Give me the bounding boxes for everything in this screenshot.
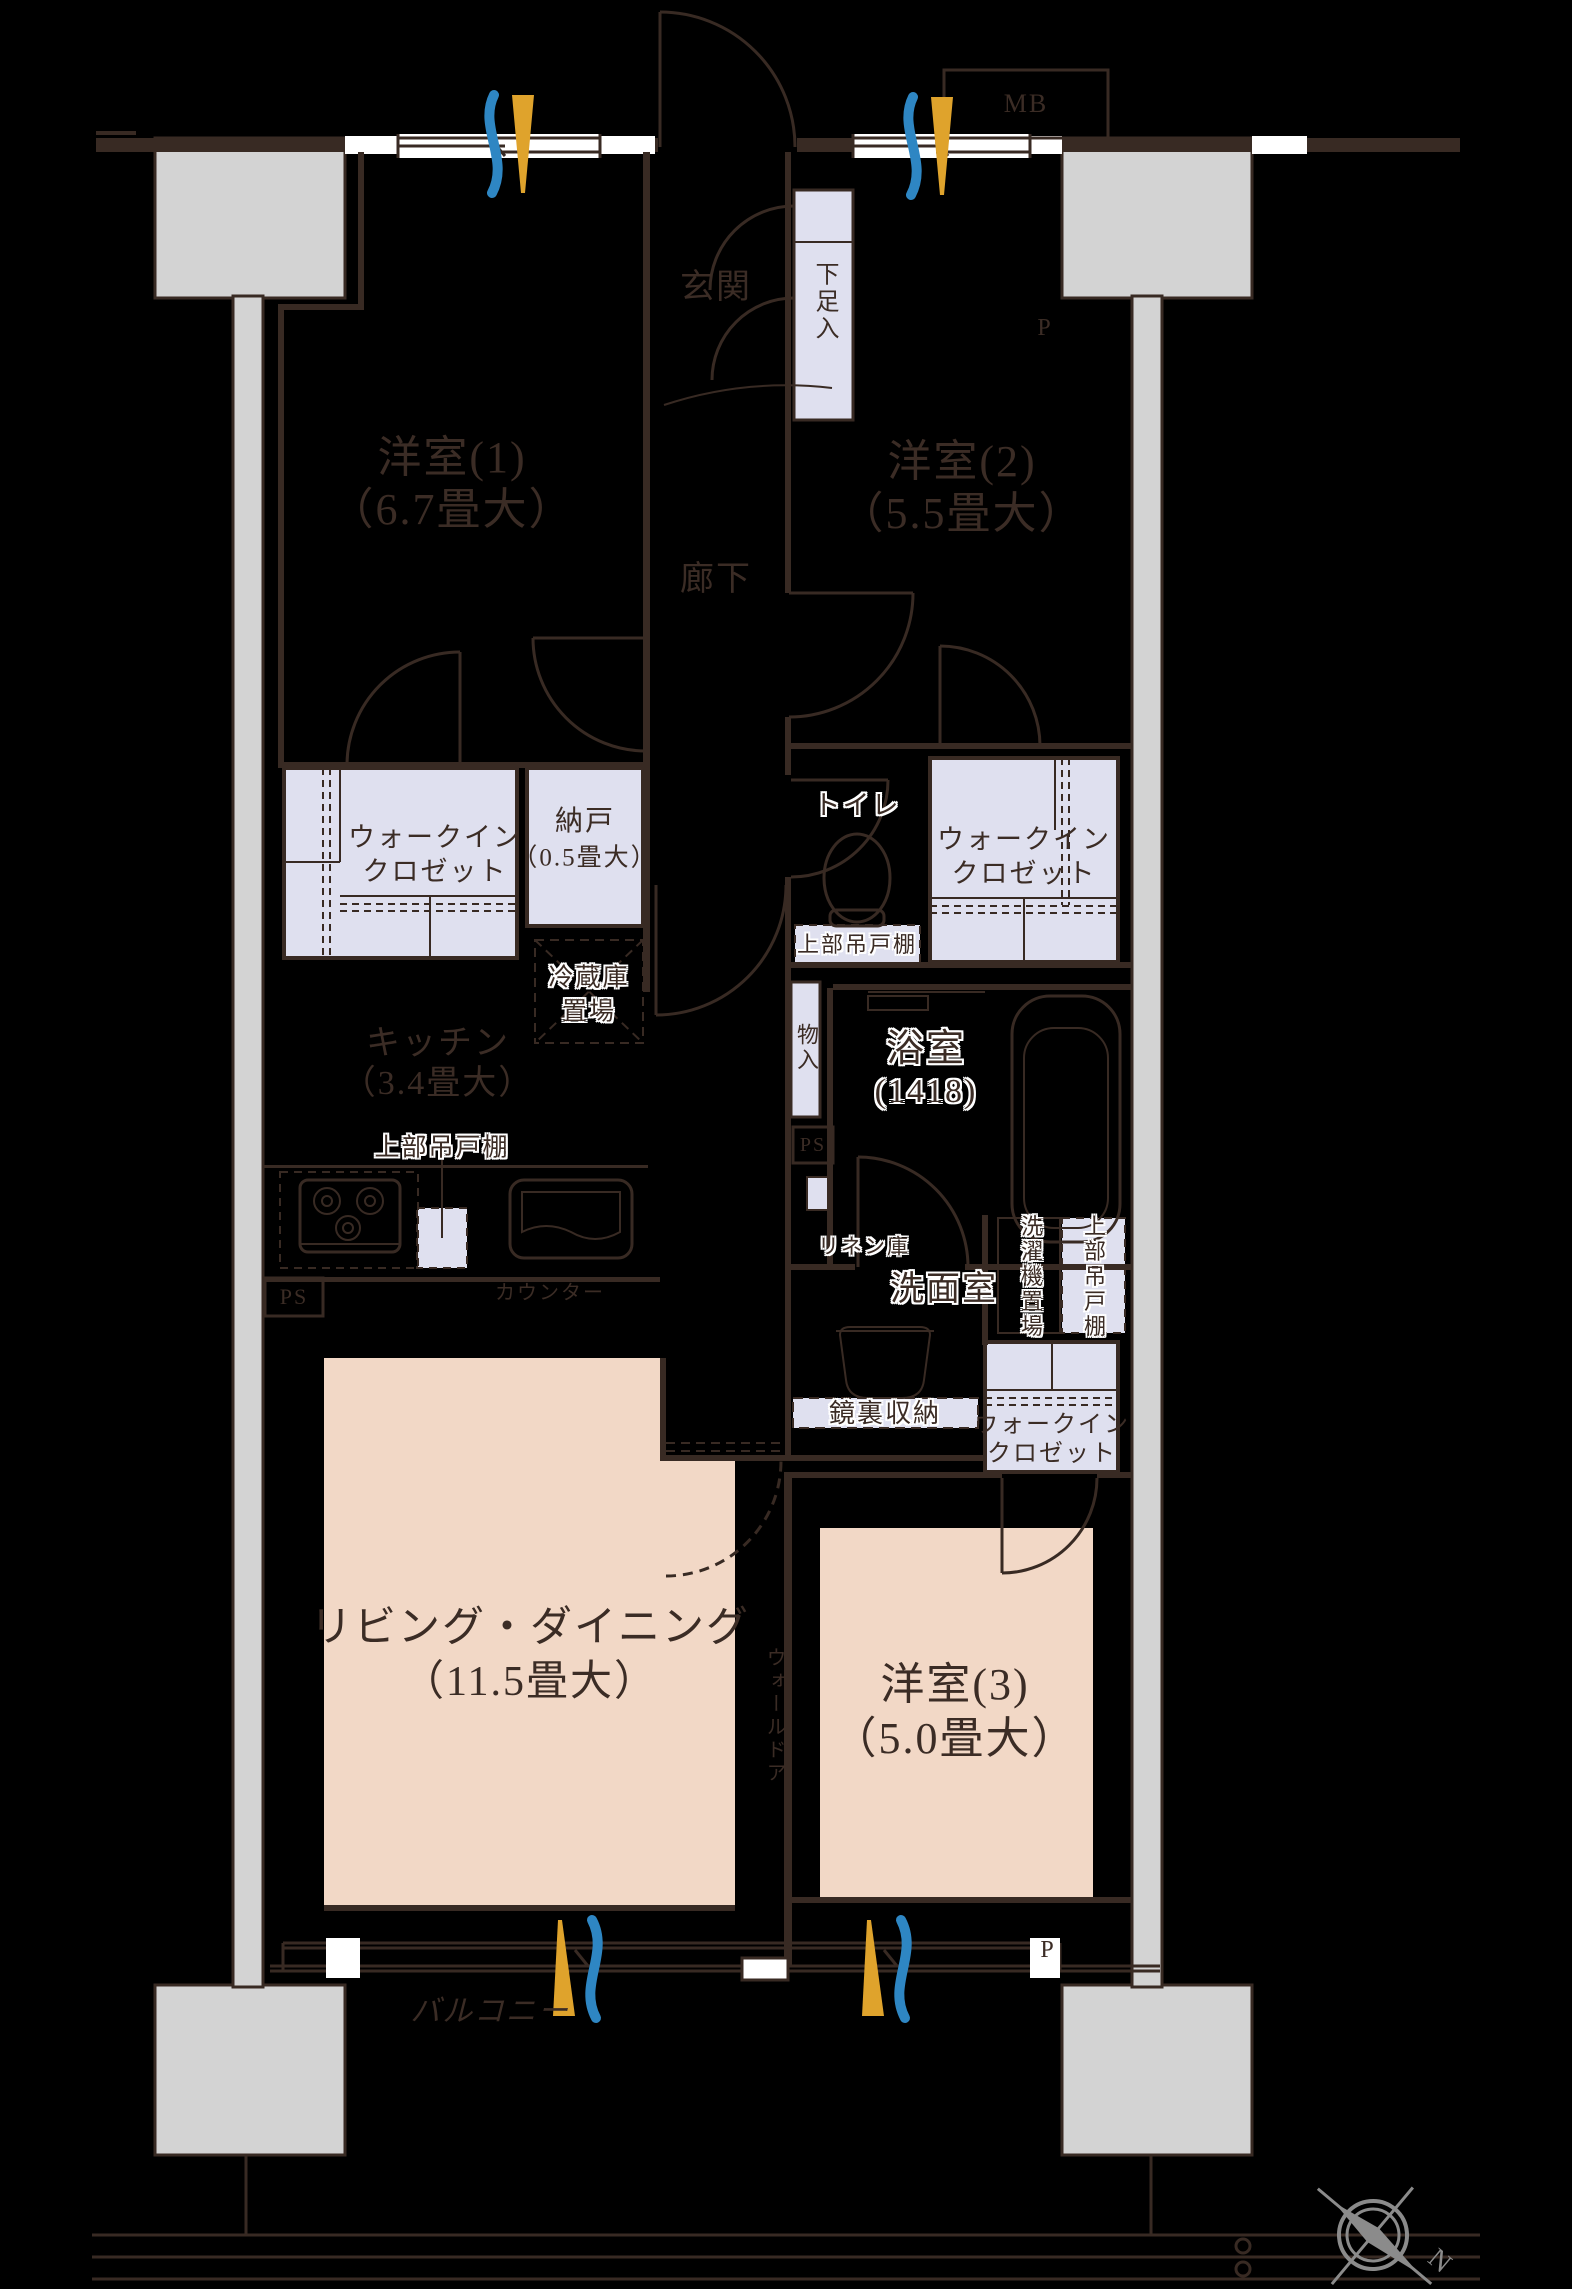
toilet-label: トイレ [814,793,901,820]
hallway-label: 廊下 [680,563,752,597]
living-dining-label: リビング・ダイニング [310,1607,750,1649]
floorplan: 洋室(1) （6.7畳大） 洋室(2) （5.5畳大） 洋室(3) （5.0畳大… [0,0,1572,2289]
bathroom-size: (1418) [875,1075,978,1109]
wic2-label-line2: クロゼット [952,861,1097,888]
bedroom2-size: （5.5畳大） [840,492,1085,536]
pillar-top-left [155,138,345,298]
linen-label: リネン庫 [818,1237,910,1258]
bedroom2-label: 洋室(2) [887,440,1036,484]
mirror-storage-label: 鏡裏収納 [829,1401,941,1427]
kitchen-label: キッチン [366,1027,510,1061]
floorplan-drawing [0,0,1572,2289]
ps-right-label: PS [800,1135,826,1155]
kitchen-upper-cabinet-label: 上部吊戸棚 [374,1136,509,1161]
meter-box-label: MB [1004,91,1048,117]
washroom-label: 洗面室 [890,1273,998,1307]
kitchen-size: （3.4畳大） [342,1067,535,1101]
pillar-bottom-left [155,1985,345,2155]
bottom-windows [270,1938,1160,1980]
pillar-bottom-right [1062,1985,1252,2155]
right-outer-wall [1132,296,1162,1987]
washer-space-label: 洗濯機置場 [1019,1215,1041,1340]
ps-left-label: PS [280,1286,308,1308]
pipe-label-bottom: P [1040,1938,1055,1962]
laundry-upper-cabinet-label: 上部吊戸棚 [1082,1215,1104,1340]
wall-door-label: ウォールドア [764,1647,784,1785]
left-outer-wall [233,296,263,1987]
nando-label: 納戸 [555,808,615,836]
entrance-label: 玄関 [680,271,752,305]
bedroom3-floor [820,1528,1093,1897]
nando-size: （0.5畳大） [512,846,657,871]
refrigerator-label-line1: 冷蔵庫 [548,966,629,991]
bedroom3-size: （5.0畳大） [833,1717,1078,1761]
small-closet-label: 物入 [795,1023,817,1073]
bathroom-label: 浴室 [886,1030,966,1068]
refrigerator-label-line2: 置場 [562,1000,616,1025]
bedroom3-label: 洋室(3) [880,1663,1029,1707]
washbasin [836,1327,934,1398]
pipe-label-top: P [1037,316,1052,340]
bedroom1-label: 洋室(1) [377,436,526,480]
wic3-label-line1: ウォークイン [974,1413,1130,1437]
stove [280,1172,418,1268]
bedroom1-size: （6.7畳大） [330,488,575,532]
counter-label: カウンター [495,1283,605,1303]
wic2-label-line1: ウォークイン [937,827,1111,854]
shoe-cabinet-label: 下足入 [812,262,836,343]
wic3-label-line2: クロゼット [987,1442,1117,1466]
refrigerator-space [535,940,643,1043]
wic1-label-line2: クロゼット [363,859,508,886]
toilet-upper-cabinet-label: 上部吊戸棚 [797,934,917,956]
balcony-label: バルコニー [410,1997,569,2027]
living-dining-size: （11.5畳大） [402,1661,658,1703]
toilet-bowl [824,834,890,926]
balcony-rails [92,2155,1480,2279]
sink [510,1180,632,1258]
pillar-top-right [1062,138,1252,298]
wic1-label-line1: ウォークイン [348,825,522,852]
